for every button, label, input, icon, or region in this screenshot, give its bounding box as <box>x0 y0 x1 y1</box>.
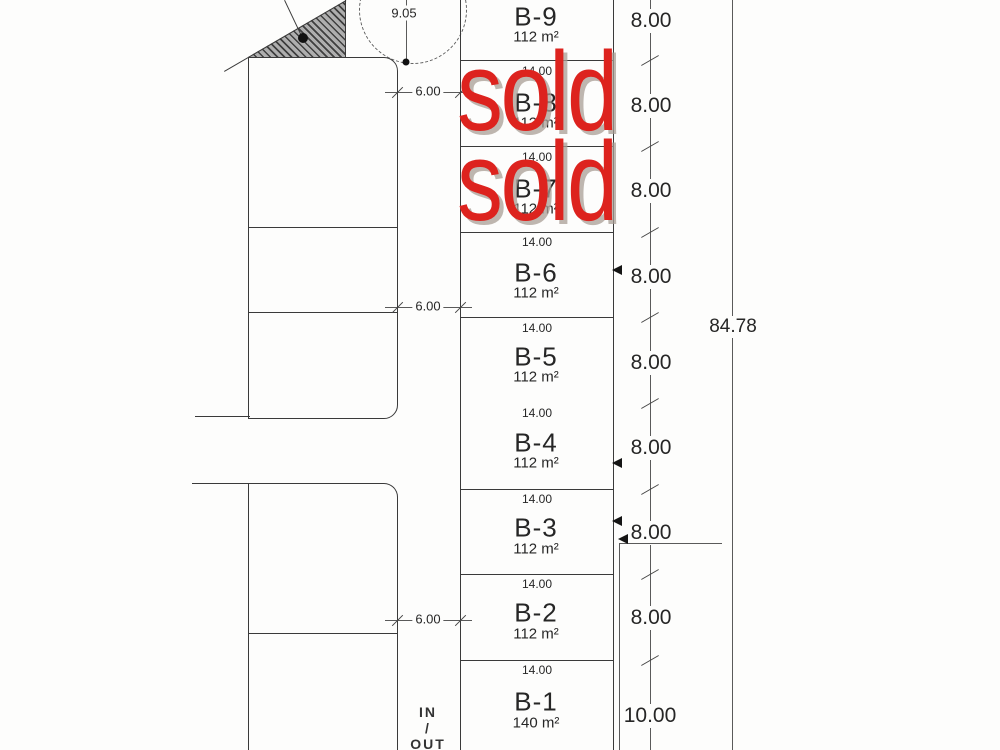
left-block-divider-line <box>248 633 397 634</box>
access-label-slash: / <box>425 720 431 736</box>
plot-depth-label: 8.00 <box>628 436 675 460</box>
left-block-divider-line <box>248 227 397 228</box>
plot-depth-label: 10.00 <box>621 704 680 728</box>
sold-stamp-b7: sold <box>457 126 616 238</box>
total-depth-label: 84.78 <box>706 316 760 338</box>
plot-boundary-line <box>460 489 613 490</box>
plot-depth-label: 8.00 <box>628 179 675 203</box>
access-label-in: IN <box>419 704 437 720</box>
road-width-label: 6.00 <box>412 299 443 314</box>
plot-depth-label: 8.00 <box>628 606 675 630</box>
plot-width-label: 14.00 <box>522 321 552 335</box>
plot-width-label: 14.00 <box>522 577 552 591</box>
aux-dimension-line <box>620 543 722 544</box>
road-width-label: 6.00 <box>412 612 443 627</box>
plot-depth-label: 8.00 <box>628 351 675 375</box>
plot-label: B-2 <box>514 598 557 629</box>
plot-area-label: 112 m² <box>513 626 559 643</box>
leader-dot <box>298 33 308 43</box>
plot-boundary-line <box>460 660 613 661</box>
plot-depth-label: 8.00 <box>628 521 675 545</box>
plot-area-label: 112 m² <box>513 455 559 472</box>
plot-depth-label: 8.00 <box>628 9 675 33</box>
plot-width-label: 14.00 <box>522 663 552 677</box>
plot-width-label: 14.00 <box>522 406 552 420</box>
road-edge-line <box>192 483 250 484</box>
total-depth-line <box>732 0 733 750</box>
dim-label-9-05: 9.05 <box>388 6 419 21</box>
plot-depth-label: 8.00 <box>628 94 675 118</box>
dim-end-dot <box>403 59 410 66</box>
triangle-edge-line <box>345 0 346 57</box>
plot-area-label: 112 m² <box>513 369 559 386</box>
plot-label: B-1 <box>514 687 557 718</box>
aux-dimension-line <box>619 543 620 750</box>
plot-depth-label: 8.00 <box>628 265 675 289</box>
left-parcel-block-lower <box>248 483 398 750</box>
aux-arrow-marker <box>618 534 628 544</box>
plot-area-label: 112 m² <box>513 541 559 558</box>
left-block-divider-line <box>248 312 397 313</box>
edge-arrow-marker <box>612 516 622 526</box>
edge-arrow-marker <box>612 458 622 468</box>
road-width-label: 6.00 <box>412 84 443 99</box>
site-plan-canvas: 9.05 B-9 112 m² B-8 112 m² B-7 112 m² B-… <box>0 0 1000 750</box>
plot-width-label: 14.00 <box>522 492 552 506</box>
road-edge-line <box>195 416 250 417</box>
plot-label: B-3 <box>514 513 557 544</box>
left-parcel-block-upper <box>248 57 398 419</box>
plot-boundary-line <box>460 574 613 575</box>
access-label-out: OUT <box>410 736 446 750</box>
plot-boundary-line <box>460 317 613 318</box>
edge-arrow-marker <box>612 265 622 275</box>
plot-area-label: 112 m² <box>513 285 559 302</box>
plot-area-label: 140 m² <box>513 715 560 732</box>
